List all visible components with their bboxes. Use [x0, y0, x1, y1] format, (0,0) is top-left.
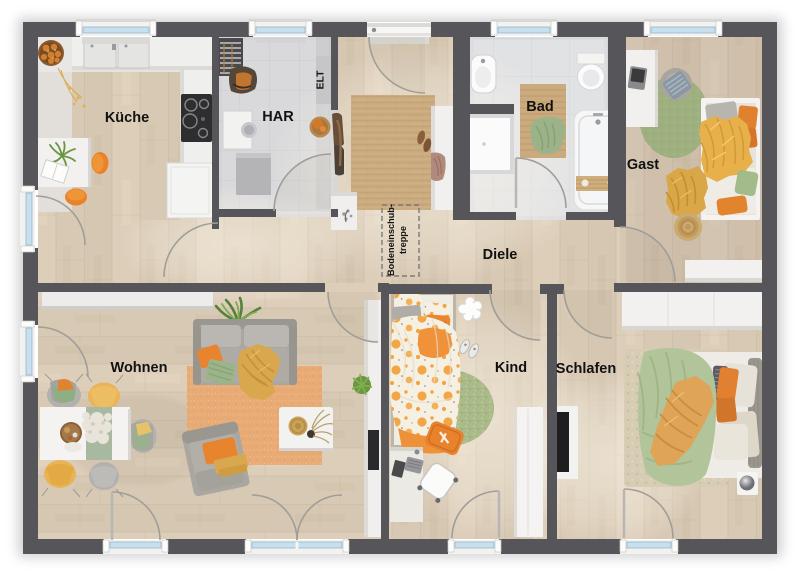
svg-text:Wohnen: Wohnen	[111, 360, 168, 376]
svg-text:treppe: treppe	[398, 226, 408, 254]
svg-text:ELT: ELT	[315, 70, 327, 90]
svg-text:HAR: HAR	[262, 109, 294, 125]
svg-text:Bodeneinschub-: Bodeneinschub-	[386, 204, 396, 276]
svg-text:Kind: Kind	[495, 360, 527, 376]
svg-text:Küche: Küche	[105, 110, 149, 126]
svg-text:Diele: Diele	[483, 247, 518, 263]
svg-text:Schlafen: Schlafen	[556, 361, 616, 377]
svg-text:Gast: Gast	[627, 157, 659, 173]
svg-text:Bad: Bad	[526, 99, 553, 115]
